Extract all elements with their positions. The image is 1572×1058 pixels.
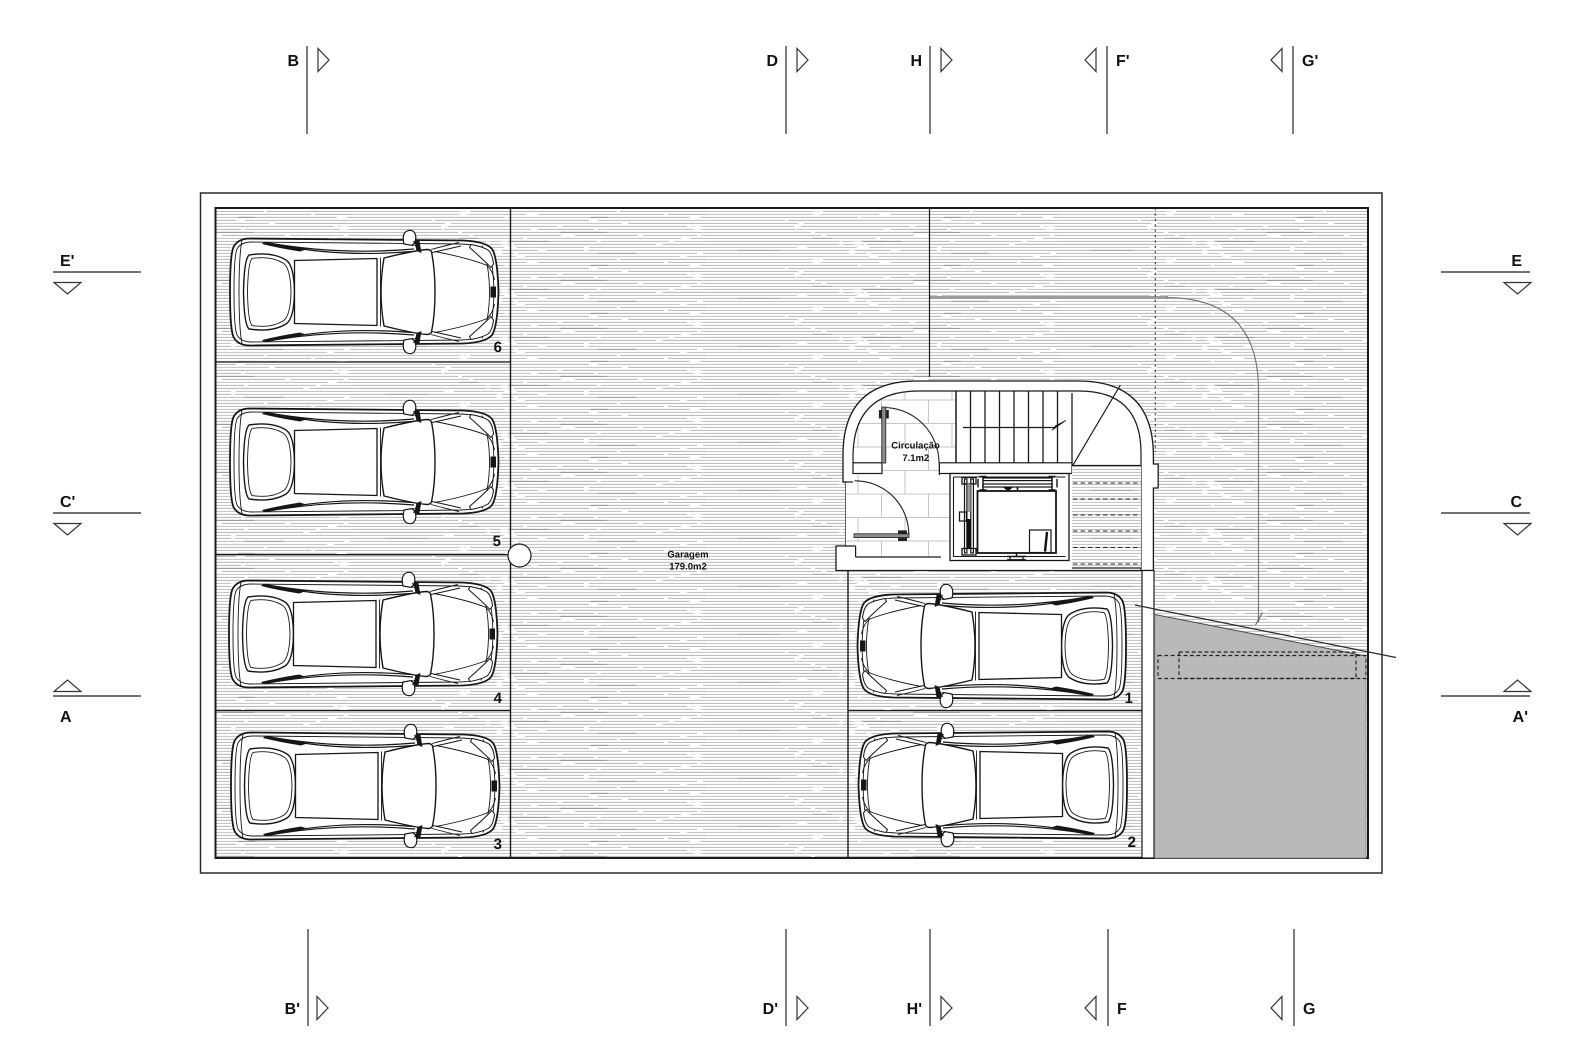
svg-text:6: 6: [494, 339, 502, 356]
svg-text:E: E: [1511, 253, 1522, 270]
svg-text:D': D': [763, 1001, 778, 1018]
svg-text:G: G: [1303, 1001, 1315, 1018]
svg-text:4: 4: [494, 690, 503, 707]
svg-text:F': F': [1116, 53, 1130, 70]
svg-text:E': E': [60, 253, 74, 270]
svg-text:5: 5: [493, 533, 501, 550]
svg-text:F: F: [1117, 1001, 1127, 1018]
svg-text:H': H': [907, 1001, 922, 1018]
svg-text:B: B: [287, 53, 299, 70]
svg-text:C: C: [1510, 494, 1522, 511]
svg-text:H: H: [910, 53, 922, 70]
svg-text:A': A': [1513, 709, 1528, 726]
svg-text:3: 3: [494, 836, 502, 853]
svg-text:D: D: [766, 53, 778, 70]
svg-text:G': G': [1302, 53, 1318, 70]
svg-text:B': B': [285, 1001, 300, 1018]
svg-text:Circulação: Circulação: [891, 441, 940, 452]
svg-text:Garagem: Garagem: [667, 550, 708, 561]
svg-text:C': C': [60, 494, 75, 511]
svg-text:179.0m2: 179.0m2: [669, 562, 707, 573]
svg-text:7.1m2: 7.1m2: [902, 453, 929, 464]
svg-text:A: A: [60, 709, 72, 726]
svg-text:2: 2: [1128, 834, 1136, 851]
svg-text:1: 1: [1125, 690, 1133, 707]
